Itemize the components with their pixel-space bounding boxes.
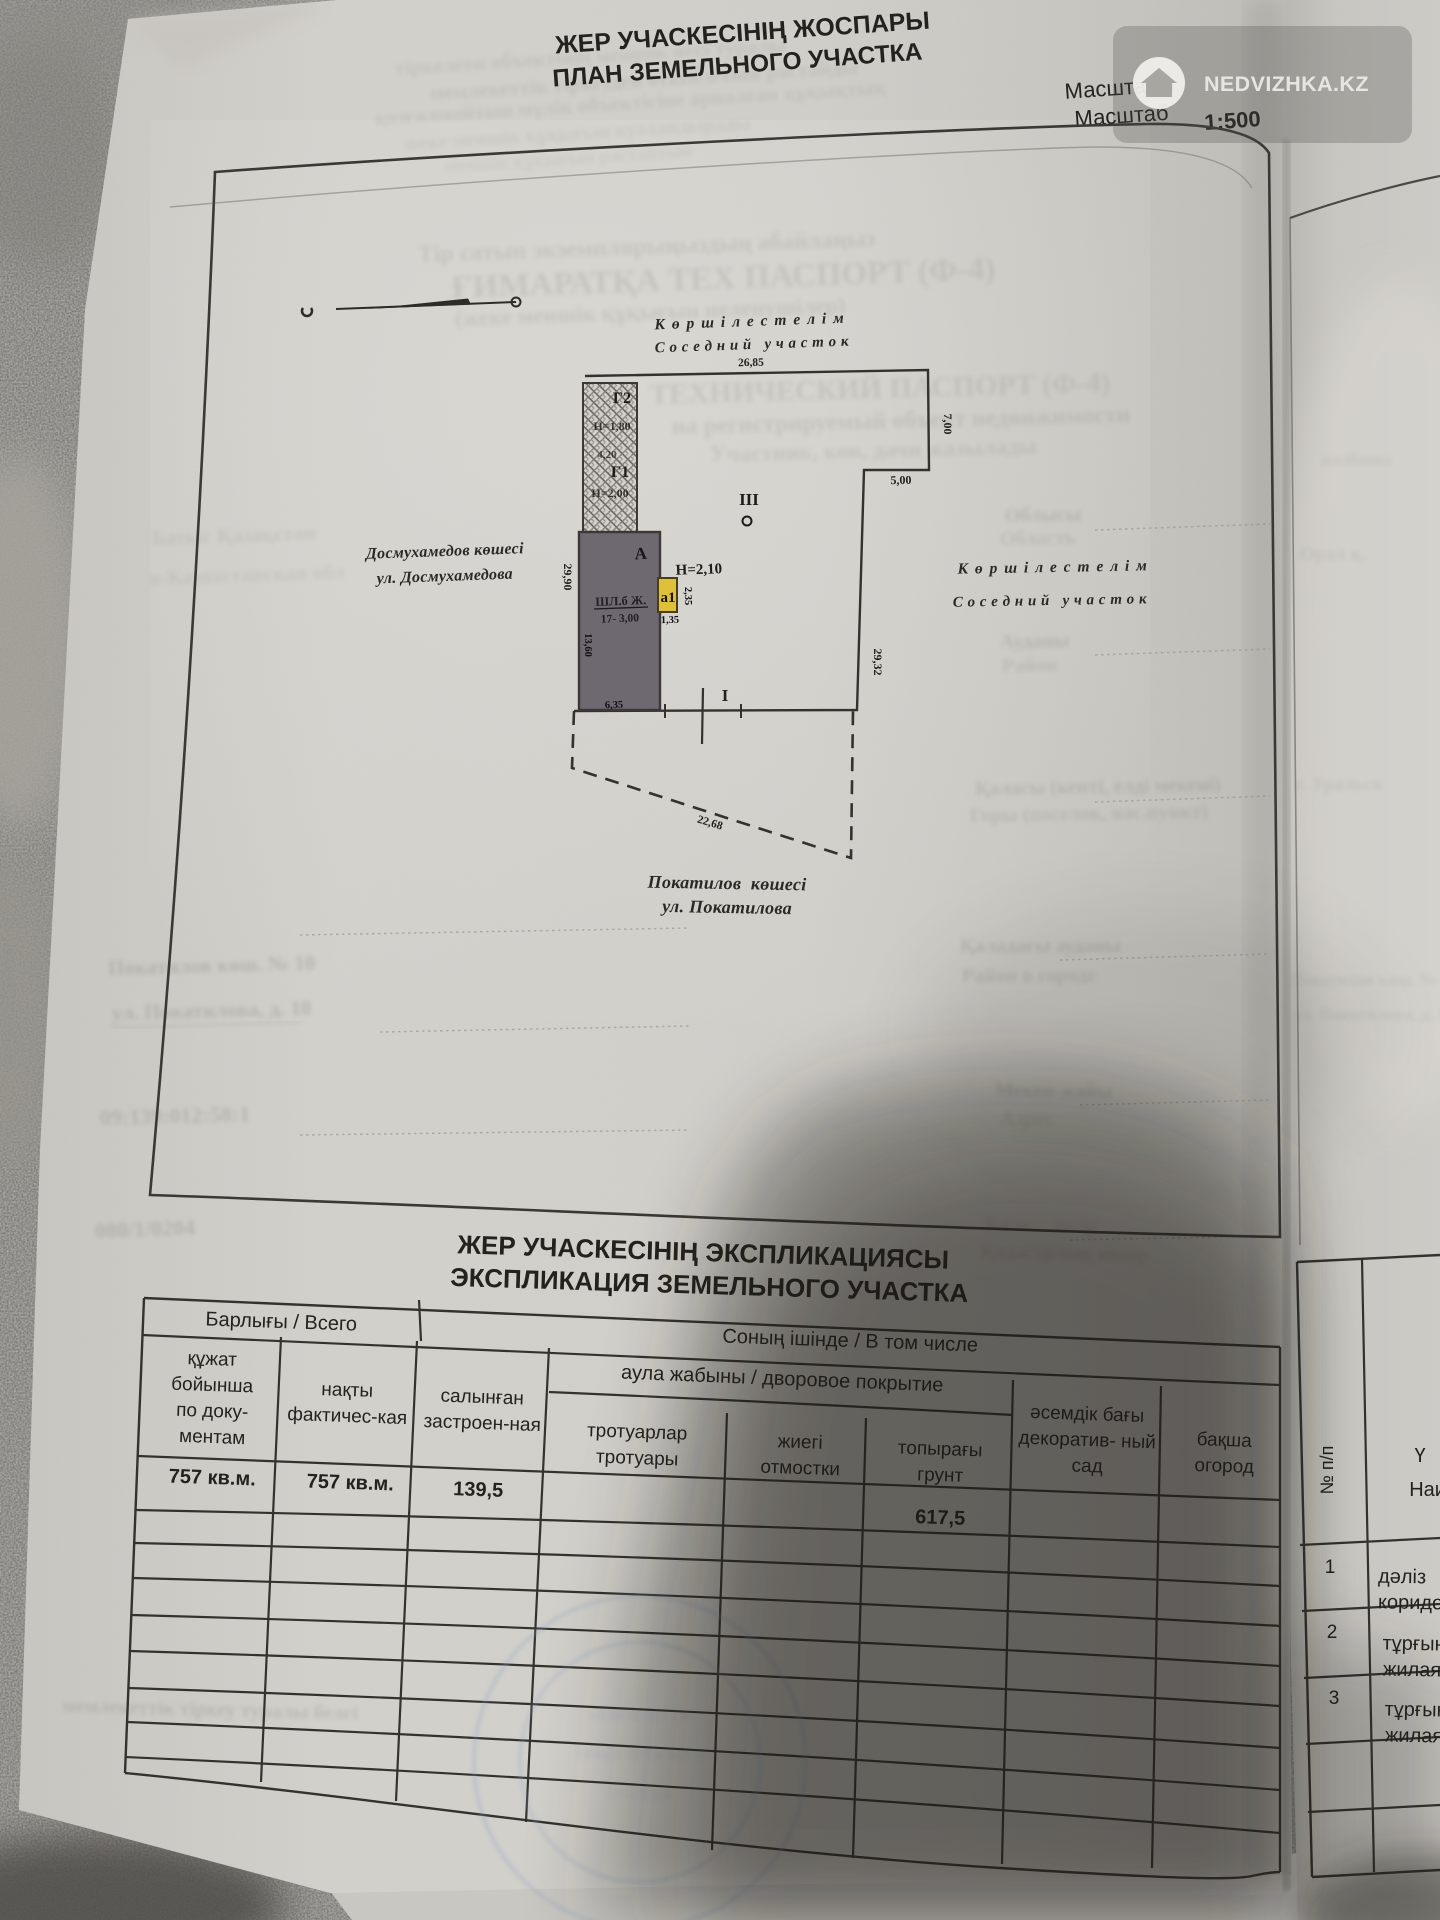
svg-text:Г2: Г2 — [613, 390, 631, 407]
svg-text:Қаласы (кенті, елді мекені): Қаласы (кенті, елді мекені) — [975, 774, 1221, 800]
svg-text:Орал қ.: Орал қ. — [1300, 544, 1366, 565]
svg-text:Горы (поселок, нас.пункт): Горы (поселок, нас.пункт) — [970, 801, 1208, 827]
svg-text:ментам: ментам — [179, 1426, 246, 1449]
svg-text:6,35: 6,35 — [605, 700, 624, 711]
svg-text:26,85: 26,85 — [738, 357, 764, 369]
svg-text:Облысы: Облысы — [1005, 504, 1082, 527]
svg-text:Ауданы: Ауданы — [1000, 630, 1070, 653]
svg-text:салынған: салынған — [440, 1386, 524, 1410]
svg-text:29,32: 29,32 — [871, 649, 885, 676]
svg-text:NEDVIZHKA.KZ: NEDVIZHKA.KZ — [1204, 72, 1369, 96]
svg-text:К ө р ш і л е с т е л і м: К ө р ш і л е с т е л і м — [956, 557, 1148, 577]
svg-text:Н=2,10: Н=2,10 — [675, 561, 722, 579]
svg-text:1: 1 — [1325, 1557, 1336, 1578]
svg-text:2,35: 2,35 — [682, 587, 693, 605]
svg-text:13,60: 13,60 — [582, 633, 593, 657]
svg-text:С о с е д н и й у ч а с т о: С о с е д н и й у ч а с т о к — [953, 591, 1147, 610]
svg-text:139,5: 139,5 — [453, 1478, 504, 1502]
svg-text:09:139:012:58:1: 09:139:012:58:1 — [99, 1101, 250, 1130]
svg-text:I: I — [722, 686, 729, 705]
svg-text:по доку-: по доку- — [176, 1400, 249, 1424]
svg-text:080/1/0204: 080/1/0204 — [94, 1215, 195, 1243]
svg-text:нақты: нақты — [321, 1379, 373, 1402]
svg-text:А: А — [634, 544, 648, 564]
svg-text:Н=1,80: Н=1,80 — [593, 419, 630, 433]
svg-text:757 кв.м.: 757 кв.м. — [168, 1465, 256, 1490]
svg-text:ШЛ.б Ж.: ШЛ.б Ж. — [595, 593, 646, 609]
svg-text:а1: а1 — [661, 590, 676, 606]
svg-text:29,90: 29,90 — [561, 564, 575, 591]
svg-text:Ү: Ү — [1414, 1445, 1425, 1467]
svg-text:757 кв.м.: 757 кв.м. — [306, 1470, 394, 1495]
svg-text:тұрғын: тұрғын — [1382, 1632, 1440, 1655]
svg-text:Н=2,00: Н=2,00 — [591, 486, 628, 500]
svg-text:17- 3,00: 17- 3,00 — [601, 612, 640, 625]
svg-text:Область: Область — [1000, 527, 1076, 550]
svg-text:г. Уральск: г. Уральск — [1295, 774, 1384, 795]
svg-text:Покатилов көшесі: Покатилов көшесі — [646, 872, 806, 895]
svg-text:1,35: 1,35 — [661, 615, 680, 626]
svg-text:застроен-ная: застроен-ная — [423, 1411, 541, 1436]
svg-text:4,20: 4,20 — [597, 449, 617, 461]
svg-text:дәліз: дәліз — [1378, 1566, 1426, 1589]
svg-text:Район: Район — [1002, 654, 1058, 677]
svg-text:фактичес-кая: фактичес-кая — [287, 1404, 408, 1429]
svg-text:Наиме: Наиме — [1409, 1479, 1440, 1501]
svg-text:III: III — [739, 490, 759, 509]
svg-text:№ п/п: № п/п — [1317, 1446, 1337, 1495]
svg-text:бойынша: бойынша — [171, 1374, 254, 1398]
svg-text:7,00: 7,00 — [941, 414, 955, 435]
svg-text:жазбаша: жазбаша — [1320, 449, 1391, 469]
svg-text:ул. Покатилова: ул. Покатилова — [660, 896, 792, 918]
svg-text:Г1: Г1 — [611, 464, 629, 481]
svg-text:5,00: 5,00 — [890, 473, 911, 487]
svg-text:құжат: құжат — [187, 1348, 237, 1371]
svg-text:коридор: коридор — [1378, 1591, 1440, 1614]
